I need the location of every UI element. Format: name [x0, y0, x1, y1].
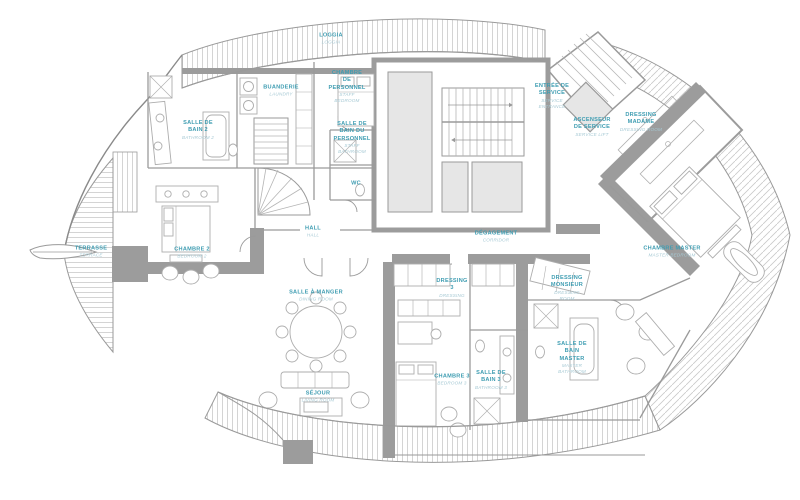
- bedroom3-furniture: [396, 300, 466, 437]
- bathroom3-fixtures: [474, 336, 514, 424]
- floor-plan-svg: [0, 0, 800, 500]
- bathroom2-fixtures: [149, 76, 238, 165]
- sofa-icon: [259, 372, 369, 416]
- floor-plan-page: LOGGIALOGGIABUANDERIELAUNDRYCHAMBRE DE P…: [0, 0, 800, 500]
- dining-table-icon: [276, 292, 356, 372]
- main-staircase: [442, 88, 524, 156]
- staff-bed-icon: [338, 74, 374, 126]
- master-lounge-furniture: [616, 304, 675, 374]
- master-bathroom-fixtures: [534, 304, 598, 380]
